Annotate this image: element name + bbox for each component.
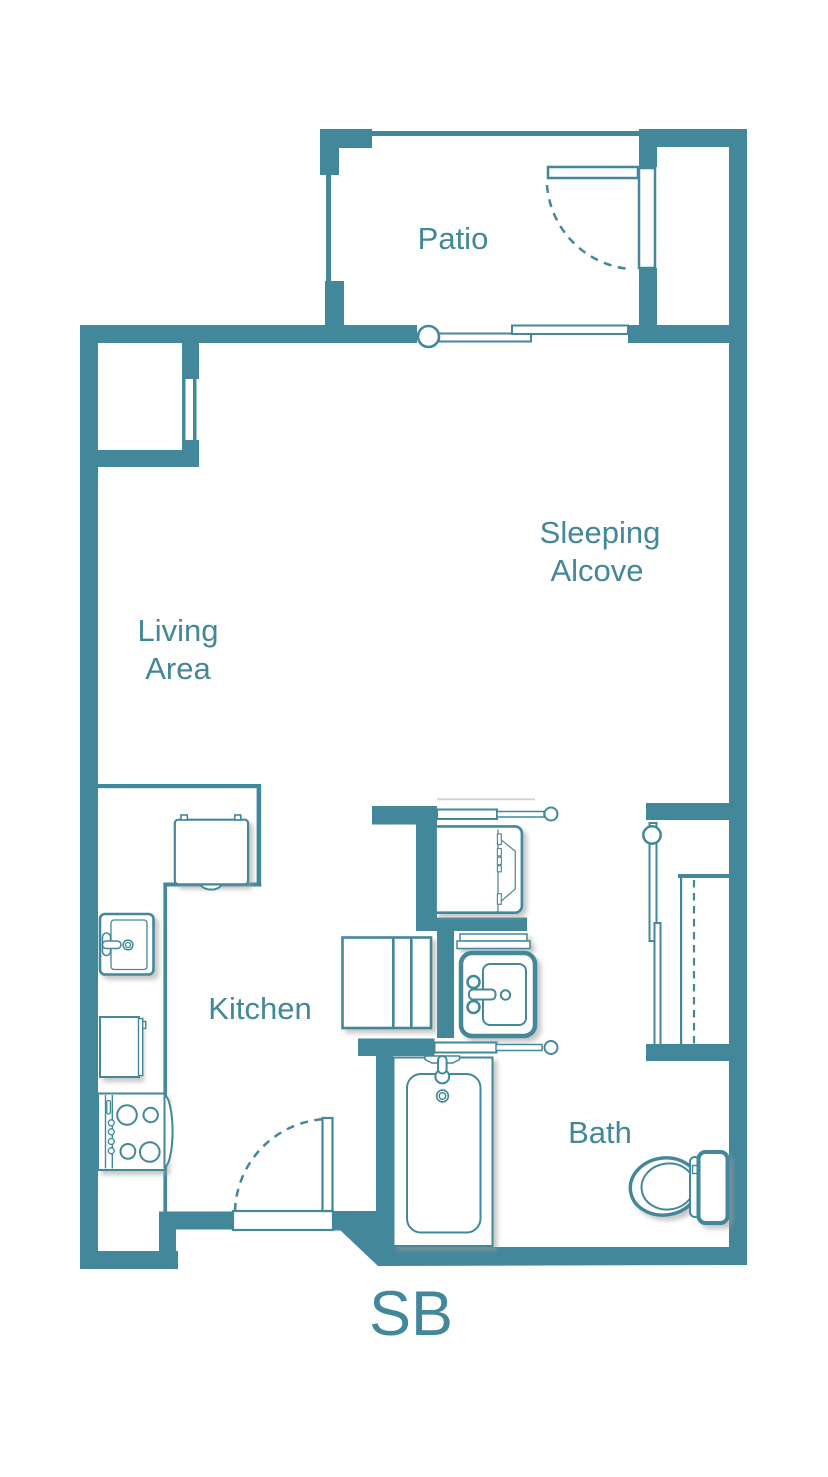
svg-text:Living: Living — [138, 613, 219, 648]
svg-text:Patio: Patio — [418, 221, 489, 256]
svg-text:Area: Area — [145, 651, 211, 686]
svg-text:SB: SB — [369, 1279, 453, 1349]
svg-text:Sleeping: Sleeping — [540, 515, 661, 550]
svg-text:Kitchen: Kitchen — [208, 991, 311, 1026]
svg-text:Alcove: Alcove — [550, 553, 643, 588]
svg-text:Bath: Bath — [568, 1115, 632, 1150]
